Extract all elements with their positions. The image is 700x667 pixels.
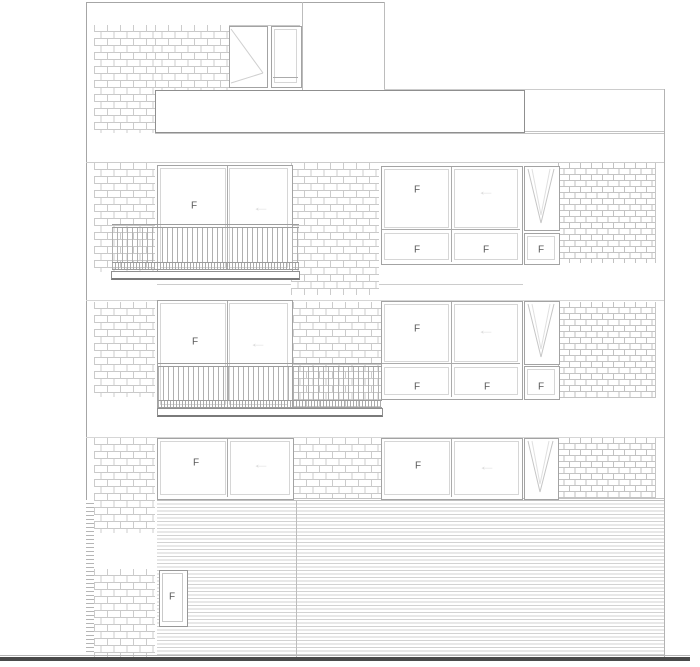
fixed-glazing-label: F	[538, 245, 544, 256]
window-transom-a	[382, 229, 520, 230]
slide-arrow-icon: ←	[252, 200, 270, 214]
fascia-bottom-line-2	[523, 131, 664, 132]
fixed-glazing-label: F	[414, 185, 420, 196]
casement-swing-icon	[230, 27, 265, 85]
left-pier-brick-ground	[94, 438, 155, 533]
floor3-railing-balusters	[112, 228, 299, 262]
fixed-glazing-label: F	[414, 245, 420, 256]
penthouse-fixed-window	[271, 26, 302, 88]
penthouse-casement-window	[229, 26, 268, 88]
floor3-window-group	[381, 166, 523, 265]
casement-v-icon	[525, 167, 557, 228]
window-transom-a	[382, 363, 520, 364]
window-mullion	[451, 167, 452, 262]
floor2-balcony-slab	[157, 408, 383, 417]
fixed-glazing-label: F	[191, 201, 197, 212]
ground-window-right	[381, 438, 523, 500]
penthouse-brick-wall	[155, 25, 229, 90]
window-mullion	[227, 439, 228, 497]
mid-pier-brick-floor3	[291, 163, 379, 295]
slide-arrow-icon: ←	[252, 457, 270, 471]
fixed-glazing-label: F	[483, 245, 489, 256]
slide-arrow-icon: ←	[478, 459, 496, 473]
slide-arrow-icon: ←	[249, 336, 267, 350]
penthouse-right-edge	[384, 2, 385, 89]
fascia-bottom-line	[155, 133, 664, 134]
fixed-glazing-label: F	[192, 337, 198, 348]
fixed-glazing-label: F	[415, 461, 421, 472]
siding-joint-line	[296, 501, 297, 657]
right-brick-floor3	[558, 163, 655, 263]
window-rail	[273, 77, 298, 78]
left-pier-brick-floor2	[94, 302, 155, 397]
left-pier-brick-top	[94, 25, 155, 133]
right-brick-edge-f2	[655, 302, 656, 398]
grade-line-thin	[0, 655, 690, 656]
slide-arrow-icon: ←	[477, 323, 495, 337]
ground-line	[0, 657, 690, 661]
right-brick-floor2	[558, 302, 655, 398]
ground-casement-window	[524, 438, 559, 500]
floor2-railing-base	[158, 400, 382, 408]
fixed-glazing-label: F	[414, 382, 420, 393]
window-pane-ul	[384, 169, 449, 228]
right-building-edge	[664, 89, 665, 657]
casement-v-icon	[525, 439, 556, 497]
floor3-casement-window	[524, 166, 560, 231]
casement-v-icon	[525, 302, 557, 362]
window-mullion	[451, 302, 452, 397]
floor2-casement-window	[524, 301, 560, 365]
siding-wall	[157, 500, 664, 658]
fixed-glazing-label: F	[484, 382, 490, 393]
corner-course-strip	[86, 500, 94, 657]
right-brick-ground	[558, 438, 655, 498]
right-brick-edge-g	[655, 438, 656, 498]
window-pane-ur	[454, 169, 518, 228]
floor3-railing-base	[112, 262, 299, 270]
parapet-fascia	[155, 90, 525, 133]
roof-edge-line	[86, 2, 384, 3]
elevation-drawing: F F F F F F F F F F F F F ← ← ← ← ← ←	[0, 0, 700, 667]
ground-window-left	[157, 438, 294, 500]
fixed-glazing-label: F	[414, 324, 420, 335]
fixed-glazing-label: F	[193, 458, 199, 469]
fixed-glazing-label: F	[538, 382, 544, 393]
mid-pier-brick-ground	[293, 438, 381, 498]
left-pier-brick-base	[94, 569, 155, 657]
penthouse-divider-line	[302, 2, 303, 90]
fixed-glazing-label: F	[169, 592, 175, 603]
right-brick-edge-f3	[655, 163, 656, 263]
window-mullion	[451, 439, 452, 497]
window-pane	[274, 29, 297, 83]
slide-arrow-icon: ←	[477, 184, 495, 198]
floor2-window-group	[381, 301, 523, 400]
floor2-railing-balusters	[158, 367, 382, 400]
floor3-balcony-slab	[111, 271, 300, 280]
